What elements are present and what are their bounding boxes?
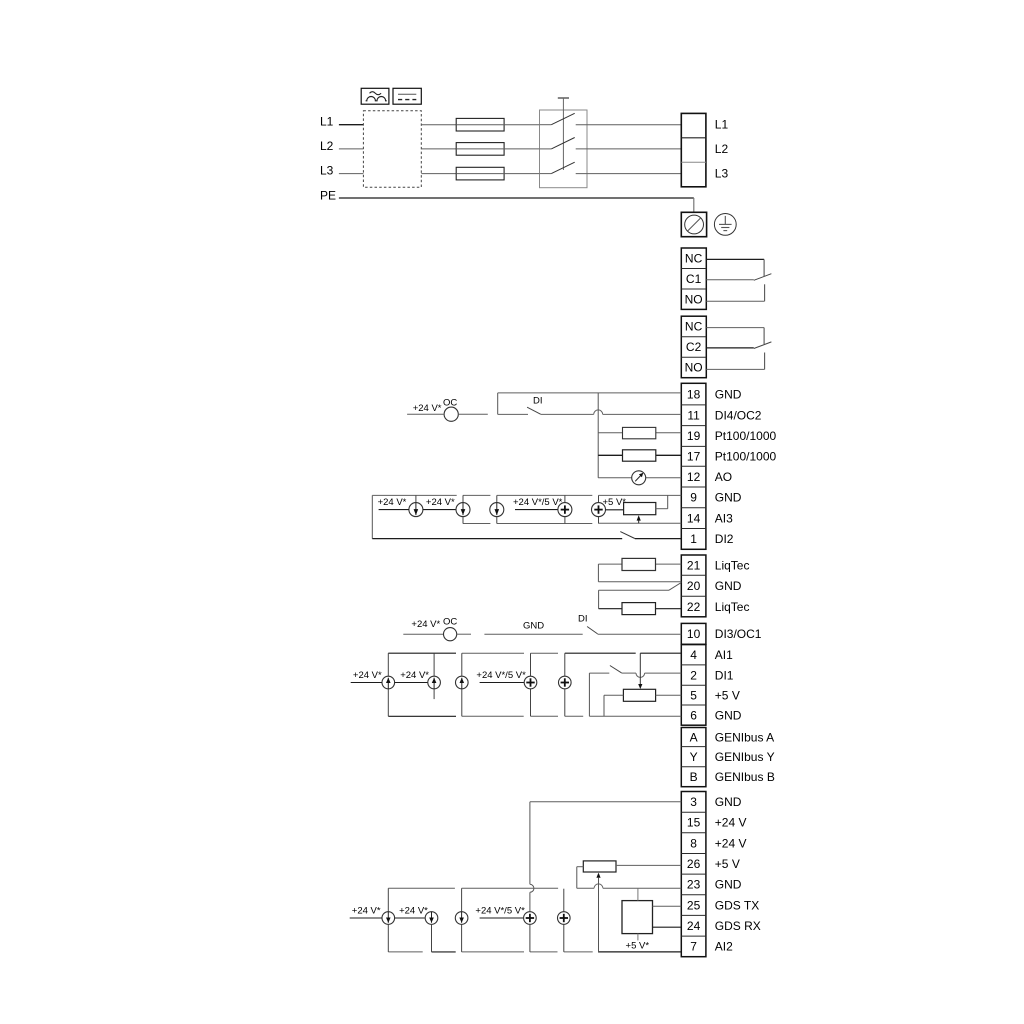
svg-text:+24 V*: +24 V* (399, 905, 428, 916)
svg-text:L2: L2 (320, 139, 334, 153)
svg-text:15: 15 (687, 816, 701, 830)
svg-text:5: 5 (690, 688, 697, 702)
svg-text:6: 6 (690, 708, 697, 722)
svg-text:+24 V*: +24 V* (413, 403, 442, 414)
svg-text:+5 V: +5 V (715, 857, 740, 871)
svg-text:C2: C2 (686, 340, 702, 354)
svg-text:NO: NO (685, 361, 703, 375)
svg-text:+24 V*: +24 V* (352, 905, 381, 916)
svg-text:LiqTec: LiqTec (715, 558, 750, 572)
svg-text:GENIbus B: GENIbus B (715, 770, 775, 784)
svg-text:A: A (690, 730, 698, 744)
svg-text:GND: GND (715, 579, 742, 593)
svg-text:3: 3 (690, 795, 697, 809)
svg-text:GND: GND (523, 621, 544, 632)
svg-text:+5 V*: +5 V* (626, 941, 650, 952)
svg-text:L3: L3 (715, 167, 729, 181)
svg-text:18: 18 (687, 387, 701, 401)
svg-text:2: 2 (690, 668, 697, 682)
svg-text:12: 12 (687, 470, 701, 484)
svg-text:+5 V*: +5 V* (603, 497, 627, 508)
svg-text:22: 22 (687, 600, 701, 614)
svg-text:NC: NC (685, 251, 703, 265)
svg-text:+24 V*: +24 V* (426, 497, 455, 508)
svg-text:1: 1 (690, 532, 697, 546)
svg-text:+24 V*/5 V*: +24 V*/5 V* (475, 905, 525, 916)
svg-text:8: 8 (690, 836, 697, 850)
svg-text:20: 20 (687, 579, 701, 593)
svg-text:C1: C1 (686, 272, 702, 286)
svg-text:GND: GND (715, 878, 742, 892)
svg-text:GND: GND (715, 491, 742, 505)
svg-text:AI1: AI1 (715, 648, 733, 662)
svg-text:+24 V*: +24 V* (353, 670, 382, 681)
svg-text:+24 V*: +24 V* (378, 497, 407, 508)
svg-text:L1: L1 (715, 118, 729, 132)
svg-text:26: 26 (687, 857, 701, 871)
svg-text:10: 10 (687, 627, 701, 641)
svg-text:GND: GND (715, 708, 742, 722)
svg-text:NO: NO (685, 292, 703, 306)
svg-text:L1: L1 (320, 115, 334, 129)
svg-text:19: 19 (687, 429, 701, 443)
svg-text:21: 21 (687, 558, 701, 572)
svg-text:B: B (690, 770, 698, 784)
svg-text:DI: DI (533, 395, 543, 406)
svg-text:+24 V*: +24 V* (400, 670, 429, 681)
svg-text:17: 17 (687, 450, 701, 464)
svg-text:NC: NC (685, 320, 703, 334)
svg-text:24: 24 (687, 919, 701, 933)
svg-text:OC: OC (443, 617, 457, 628)
svg-text:+24 V: +24 V (715, 836, 747, 850)
svg-text:7: 7 (690, 940, 697, 954)
svg-text:DI4/OC2: DI4/OC2 (715, 408, 762, 422)
svg-text:23: 23 (687, 878, 701, 892)
svg-text:DI3/OC1: DI3/OC1 (715, 627, 762, 641)
svg-text:+24 V*: +24 V* (411, 619, 440, 630)
svg-text:AI2: AI2 (715, 940, 733, 954)
svg-text:AI3: AI3 (715, 511, 733, 525)
svg-text:GND: GND (715, 387, 742, 401)
svg-text:GENIbus Y: GENIbus Y (715, 750, 775, 764)
svg-text:Pt100/1000: Pt100/1000 (715, 429, 777, 443)
svg-text:14: 14 (687, 511, 701, 525)
svg-text:25: 25 (687, 898, 701, 912)
svg-text:+24 V*/5 V*: +24 V*/5 V* (476, 670, 526, 681)
svg-text:DI: DI (578, 614, 588, 625)
svg-text:+24 V*/5 V*: +24 V*/5 V* (513, 497, 563, 508)
svg-text:DI2: DI2 (715, 532, 734, 546)
svg-text:GND: GND (715, 795, 742, 809)
svg-text:11: 11 (687, 408, 700, 422)
svg-text:9: 9 (690, 491, 697, 505)
svg-text:+5 V: +5 V (715, 688, 740, 702)
svg-text:Pt100/1000: Pt100/1000 (715, 450, 777, 464)
svg-text:LiqTec: LiqTec (715, 600, 750, 614)
svg-text:L3: L3 (320, 163, 334, 177)
svg-text:Y: Y (690, 750, 698, 764)
svg-text:GDS RX: GDS RX (715, 919, 761, 933)
svg-text:GDS TX: GDS TX (715, 898, 759, 912)
svg-text:4: 4 (690, 648, 697, 662)
svg-text:+24 V: +24 V (715, 816, 747, 830)
svg-text:DI1: DI1 (715, 668, 734, 682)
svg-text:GENIbus A: GENIbus A (715, 730, 774, 744)
svg-text:AO: AO (715, 470, 732, 484)
svg-text:L2: L2 (715, 142, 729, 156)
svg-text:PE: PE (320, 189, 336, 203)
